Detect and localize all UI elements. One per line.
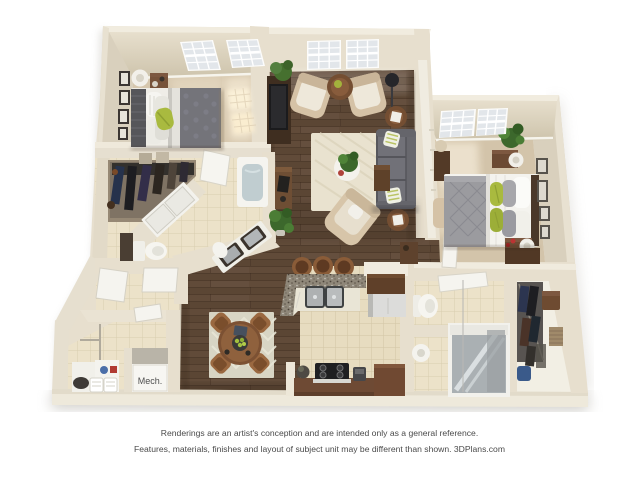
svg-text:Mech.: Mech. bbox=[138, 376, 163, 386]
